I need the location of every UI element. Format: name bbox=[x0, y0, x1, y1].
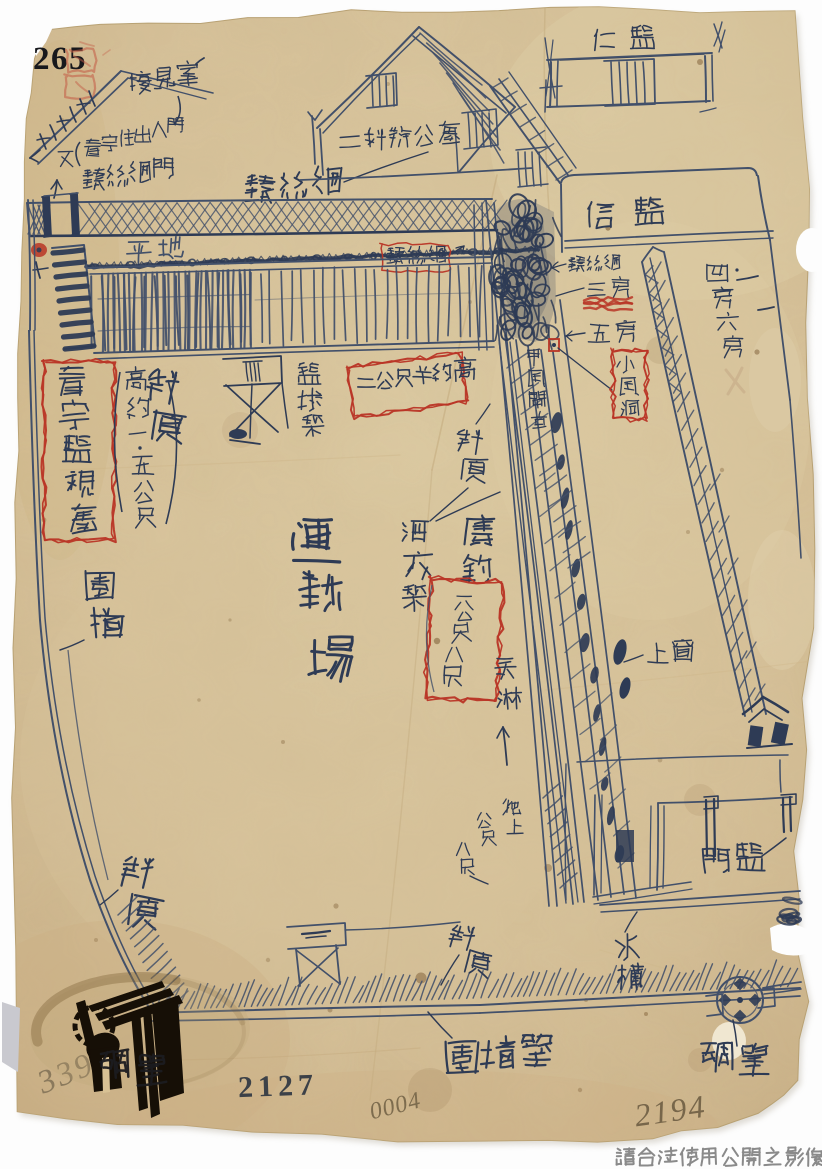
svg-text:2127: 2127 bbox=[237, 1068, 318, 1104]
